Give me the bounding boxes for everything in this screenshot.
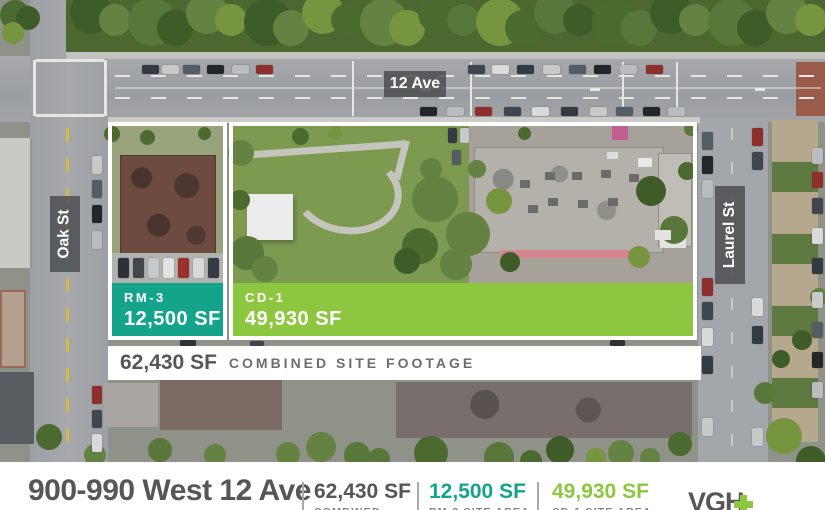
combined-footage-label: COMBINED SITE FOOTAGE xyxy=(229,355,475,371)
car xyxy=(812,172,823,188)
stat-rm3: 12,500 SF RM-3 SITE AREA xyxy=(429,480,530,510)
road-marking xyxy=(727,75,742,77)
car xyxy=(594,65,611,74)
tree xyxy=(772,350,790,368)
car xyxy=(702,156,713,174)
street-label-laurel: Laurel St xyxy=(715,186,745,284)
road-marking xyxy=(511,75,526,77)
road-marking xyxy=(475,75,490,77)
street-label-text: Oak St xyxy=(56,209,74,258)
road-marking xyxy=(331,97,346,99)
car xyxy=(561,107,578,116)
road-marking xyxy=(33,60,36,116)
car xyxy=(812,258,823,274)
tree xyxy=(668,432,692,456)
car xyxy=(532,107,549,116)
road-marking xyxy=(223,97,238,99)
car xyxy=(162,65,179,74)
car xyxy=(92,180,102,198)
car xyxy=(812,148,823,164)
car xyxy=(517,65,534,74)
car xyxy=(183,65,200,74)
car xyxy=(543,65,560,74)
road-marking xyxy=(295,75,310,77)
road-marking xyxy=(115,87,821,89)
cd1-zone-bar: CD-1 49,930 SF xyxy=(233,283,693,336)
road-marking xyxy=(655,75,670,77)
car xyxy=(504,107,521,116)
car xyxy=(702,180,713,198)
car xyxy=(812,352,823,368)
car xyxy=(92,434,102,452)
cd1-zone-label: CD-1 xyxy=(245,290,693,305)
car xyxy=(702,278,713,296)
street-label-text: 12 Ave xyxy=(390,75,440,93)
road-marking xyxy=(367,75,382,77)
car xyxy=(752,128,763,146)
rm3-area-value: 12,500 SF xyxy=(124,308,223,331)
road-marking xyxy=(367,97,382,99)
road-marking xyxy=(403,97,418,99)
road-marking xyxy=(36,114,104,117)
parcel-rm3: RM-3 12,500 SF xyxy=(108,122,227,340)
tree xyxy=(563,4,595,36)
road-marking xyxy=(655,97,670,99)
car xyxy=(590,107,607,116)
car xyxy=(702,418,713,436)
car xyxy=(702,302,713,320)
combined-footage-bar: 62,430 SF COMBINED SITE FOOTAGE xyxy=(108,346,701,380)
road-marking xyxy=(583,75,598,77)
road-marking xyxy=(295,97,310,99)
road-marking xyxy=(104,60,107,116)
tree xyxy=(447,4,479,36)
road-marking xyxy=(352,61,354,116)
page-title: 900-990 West 12 Ave xyxy=(28,474,311,508)
car xyxy=(92,205,102,223)
car xyxy=(643,107,660,116)
car xyxy=(620,65,637,74)
car xyxy=(232,65,249,74)
road-marking xyxy=(763,75,778,77)
satellite-map: 12 Ave Oak St Laurel St RM-3 12,500 SF C… xyxy=(0,0,825,463)
divider xyxy=(302,482,304,510)
tree xyxy=(766,418,802,454)
parcel-cd1: CD-1 49,930 SF xyxy=(229,122,697,340)
stat-value: 12,500 SF xyxy=(429,480,530,504)
car xyxy=(207,65,224,74)
road-marking xyxy=(755,88,765,91)
car xyxy=(668,107,685,116)
car xyxy=(92,156,102,174)
car xyxy=(142,65,159,74)
road-marking xyxy=(151,97,166,99)
road-marking xyxy=(727,97,742,99)
tree xyxy=(2,22,24,44)
car xyxy=(420,107,437,116)
tree xyxy=(148,438,172,462)
brochure-page: 12 Ave Oak St Laurel St RM-3 12,500 SF C… xyxy=(0,0,825,510)
road-marking xyxy=(583,97,598,99)
car xyxy=(646,65,663,74)
road-marking xyxy=(439,97,454,99)
road-marking xyxy=(547,97,562,99)
street-label-12ave: 12 Ave xyxy=(384,71,446,97)
stat-label: RM-3 SITE AREA xyxy=(429,506,530,510)
car xyxy=(702,132,713,150)
road-marking xyxy=(547,75,562,77)
tree xyxy=(792,330,812,350)
road-marking xyxy=(763,97,778,99)
road-marking xyxy=(691,75,706,77)
stat-value: 49,930 SF xyxy=(552,480,652,504)
vgh-logo: VGH xyxy=(688,489,753,510)
car xyxy=(92,386,102,404)
tree xyxy=(36,424,62,450)
road-marking xyxy=(115,75,130,77)
road-marking xyxy=(331,75,346,77)
stat-combined: 62,430 SF COMBINED xyxy=(314,480,411,510)
car xyxy=(812,292,823,308)
stat-label: CD-1 SITE AREA xyxy=(552,506,652,510)
car xyxy=(812,322,823,338)
car xyxy=(812,382,823,398)
road-marking xyxy=(151,75,166,77)
car xyxy=(92,231,102,249)
cd1-area-value: 49,930 SF xyxy=(245,308,693,331)
car xyxy=(812,198,823,214)
road-marking xyxy=(691,97,706,99)
car xyxy=(468,65,485,74)
road-marking xyxy=(590,88,600,91)
road-marking xyxy=(223,75,238,77)
tree xyxy=(754,382,776,404)
street-label-oak: Oak St xyxy=(50,196,80,272)
car xyxy=(812,228,823,244)
road-marking xyxy=(511,97,526,99)
tree xyxy=(546,436,574,464)
tree xyxy=(99,4,131,36)
tree xyxy=(795,4,825,36)
car xyxy=(752,152,763,170)
car xyxy=(752,428,763,446)
tree xyxy=(306,432,336,462)
car xyxy=(569,65,586,74)
road-marking xyxy=(259,75,274,77)
vgh-plus-icon xyxy=(734,495,753,510)
divider xyxy=(417,482,419,510)
stat-value: 62,430 SF xyxy=(314,480,411,504)
road-marking xyxy=(187,75,202,77)
road-marking xyxy=(259,97,274,99)
tree xyxy=(215,4,247,36)
road-marking xyxy=(115,97,130,99)
road-marking xyxy=(799,97,814,99)
road-marking xyxy=(36,59,104,62)
footer: 900-990 West 12 Ave 62,430 SF COMBINED 1… xyxy=(0,462,825,510)
rm3-zone-bar: RM-3 12,500 SF xyxy=(112,283,223,336)
street-label-text: Laurel St xyxy=(721,202,739,268)
car xyxy=(492,65,509,74)
car xyxy=(702,328,713,346)
car xyxy=(752,326,763,344)
road-marking xyxy=(799,75,814,77)
car xyxy=(447,107,464,116)
car xyxy=(702,356,713,374)
car xyxy=(616,107,633,116)
car xyxy=(256,65,273,74)
tree xyxy=(331,4,363,36)
divider xyxy=(537,482,539,510)
rm3-zone-label: RM-3 xyxy=(124,290,223,305)
road-marking xyxy=(475,97,490,99)
stat-cd1: 49,930 SF CD-1 SITE AREA xyxy=(552,480,652,510)
road-marking xyxy=(187,97,202,99)
car xyxy=(475,107,492,116)
stat-label: COMBINED xyxy=(314,506,411,510)
car xyxy=(92,410,102,428)
car xyxy=(752,298,763,316)
tree xyxy=(679,4,711,36)
combined-footage-value: 62,430 SF xyxy=(120,351,217,375)
